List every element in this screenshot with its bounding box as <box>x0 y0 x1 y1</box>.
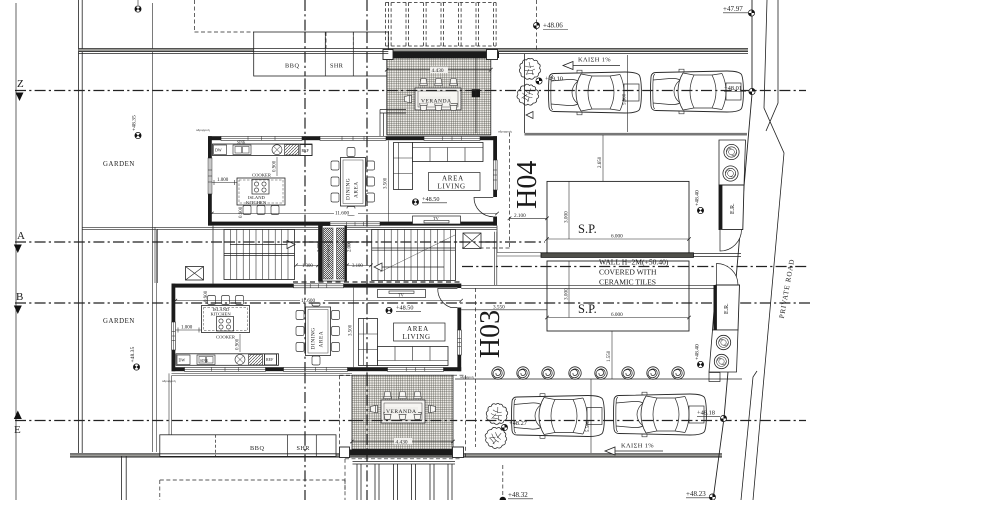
svg-text:+48.40: +48.40 <box>695 190 701 206</box>
svg-text:VERANDA: VERANDA <box>386 409 417 415</box>
svg-text:COOKER: COOKER <box>216 335 236 340</box>
svg-text:VERANDA: VERANDA <box>421 99 452 105</box>
svg-text:GARDEN: GARDEN <box>103 318 135 325</box>
svg-text:COVERED WITH: COVERED WITH <box>599 268 657 277</box>
svg-text:LIVING: LIVING <box>438 183 466 191</box>
svg-text:A: A <box>17 230 25 242</box>
svg-text:+48.32: +48.32 <box>508 491 528 499</box>
svg-text:+48.06: +48.06 <box>543 22 563 30</box>
svg-text:WALL H=2M(+50.40): WALL H=2M(+50.40) <box>599 258 669 267</box>
svg-text:+48.40: +48.40 <box>695 344 701 360</box>
svg-text:+48.50: +48.50 <box>396 305 413 312</box>
svg-text:+48.35: +48.35 <box>130 347 136 363</box>
svg-text:3.100: 3.100 <box>352 264 363 269</box>
svg-text:ΚΛΙΣΗ 1%: ΚΛΙΣΗ 1% <box>578 57 611 64</box>
svg-text:+48.50: +48.50 <box>422 196 439 203</box>
svg-text:REF: REF <box>266 357 274 362</box>
svg-text:AREA: AREA <box>407 325 429 333</box>
svg-text:SINK: SINK <box>237 141 246 145</box>
svg-text:H03: H03 <box>475 310 506 358</box>
svg-text:2.100: 2.100 <box>514 213 526 219</box>
svg-text:1.000: 1.000 <box>217 178 229 183</box>
svg-text:B: B <box>16 291 23 303</box>
svg-text:0.900: 0.900 <box>239 206 244 218</box>
svg-text:0.900: 0.900 <box>273 160 278 172</box>
svg-text:1.300: 1.300 <box>302 264 313 269</box>
svg-text:S.P.: S.P. <box>578 222 597 236</box>
svg-text:BBQ: BBQ <box>285 63 300 70</box>
svg-text:SINK: SINK <box>200 359 209 363</box>
svg-text:KITCHEN: KITCHEN <box>211 312 232 317</box>
svg-text:COOKER: COOKER <box>252 173 272 178</box>
svg-text:3.500: 3.500 <box>349 324 354 336</box>
svg-text:3.000: 3.000 <box>564 211 570 223</box>
svg-text:DINING: DINING <box>311 327 317 349</box>
svg-text:6.000: 6.000 <box>611 234 623 240</box>
svg-text:4.430: 4.430 <box>396 440 408 446</box>
svg-text:3.000: 3.000 <box>564 288 570 300</box>
svg-text:DW: DW <box>215 148 222 153</box>
svg-text:DINING: DINING <box>346 178 352 200</box>
svg-text:+47.97: +47.97 <box>723 5 743 13</box>
svg-text:BBQ: BBQ <box>250 445 265 452</box>
svg-text:0.900: 0.900 <box>204 290 209 302</box>
svg-text:3.500: 3.500 <box>384 177 389 189</box>
svg-text:DW: DW <box>179 358 186 363</box>
svg-text:AREA: AREA <box>354 181 360 198</box>
svg-text:TV: TV <box>433 216 440 221</box>
svg-text:CERAMIC TILES: CERAMIC TILES <box>599 278 656 287</box>
svg-text:E.R.: E.R. <box>724 303 730 314</box>
svg-text:ΚΛΙΣΗ 1%: ΚΛΙΣΗ 1% <box>621 443 654 450</box>
svg-text:3.550: 3.550 <box>493 305 505 311</box>
svg-text:GARDEN: GARDEN <box>103 161 135 168</box>
svg-text:SHR: SHR <box>297 445 311 452</box>
svg-text:4.430: 4.430 <box>432 68 444 74</box>
svg-text:S.P.: S.P. <box>578 302 597 316</box>
svg-text:υδρορροή: υδρορροή <box>196 128 210 132</box>
svg-text:+48.01: +48.01 <box>724 85 742 92</box>
svg-text:υδρορροή: υδρορροή <box>498 130 512 134</box>
svg-text:AREA: AREA <box>319 331 325 348</box>
svg-text:AREA: AREA <box>442 175 464 183</box>
svg-text:E.R.: E.R. <box>730 203 736 214</box>
svg-text:2.650: 2.650 <box>598 156 603 168</box>
svg-text:+48.27: +48.27 <box>509 420 528 427</box>
svg-text:11.600: 11.600 <box>335 211 349 217</box>
svg-text:Z: Z <box>17 78 24 90</box>
svg-text:E: E <box>14 424 21 436</box>
svg-text:SHR: SHR <box>330 63 344 70</box>
svg-text:+48.23: +48.23 <box>686 490 706 498</box>
svg-text:KITCHEN: KITCHEN <box>246 200 267 205</box>
svg-text:TV: TV <box>398 293 405 298</box>
svg-text:υδρορροή: υδρορροή <box>460 375 474 379</box>
svg-text:LIVING: LIVING <box>403 333 431 341</box>
svg-text:1.000: 1.000 <box>181 326 193 331</box>
svg-text:ΑΝΕΛΚΥΣΤΗΡΑΣ: ΑΝΕΛΚΥΣΤΗΡΑΣ <box>327 244 331 268</box>
svg-text:+48.35: +48.35 <box>132 115 138 131</box>
svg-text:+49.10: +49.10 <box>545 76 563 83</box>
svg-text:1.550: 1.550 <box>607 350 612 362</box>
svg-text:5.500: 5.500 <box>586 420 591 432</box>
svg-text:H04: H04 <box>512 161 543 209</box>
svg-text:+48.18: +48.18 <box>697 410 715 417</box>
svg-text:0.900: 0.900 <box>236 338 241 350</box>
svg-text:6.000: 6.000 <box>611 312 623 318</box>
